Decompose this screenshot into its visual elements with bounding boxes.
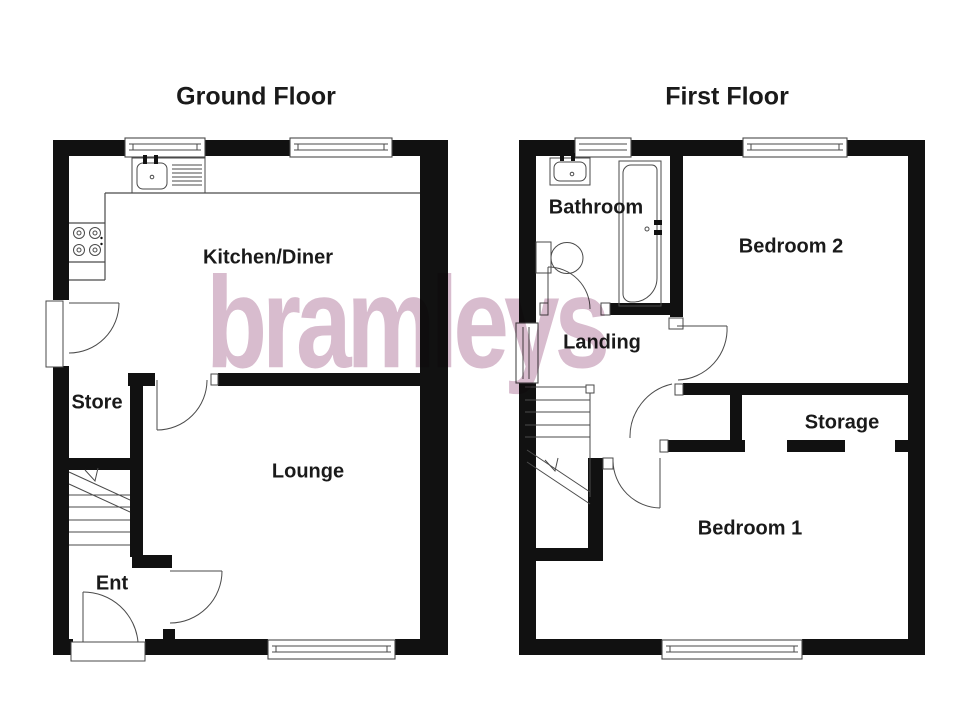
- front-door: [71, 592, 145, 661]
- bathroom-window: [575, 138, 631, 157]
- diner-window: [290, 138, 392, 157]
- bath: [619, 161, 662, 306]
- kitchen-lounge-door: [157, 380, 207, 430]
- room-label-lounge: Lounge: [272, 461, 344, 484]
- bedroom2-window: [743, 138, 847, 157]
- bedroom1-window: [662, 640, 802, 659]
- room-label-store: Store: [71, 392, 122, 415]
- ground-stairs: [69, 468, 130, 545]
- floorplan-canvas: Ground Floor First Floor Kitchen/Diner S…: [0, 0, 980, 712]
- storage-front-wall: [787, 440, 845, 452]
- agency-watermark: bramleys: [206, 258, 605, 388]
- bedroom2-door: [677, 326, 727, 380]
- room-label-storage: Storage: [805, 412, 879, 435]
- room-label-bedroom2: Bedroom 2: [739, 236, 843, 259]
- room-label-ent: Ent: [96, 573, 128, 596]
- kitchen-window: [125, 138, 205, 157]
- ent-lounge-door: [170, 571, 222, 623]
- ground-floor-title: Ground Floor: [176, 83, 336, 112]
- kitchen-sink: [132, 155, 205, 193]
- room-label-bedroom1: Bedroom 1: [698, 518, 802, 541]
- side-door: [46, 301, 119, 367]
- ground-windows: [125, 138, 395, 659]
- room-label-bathroom: Bathroom: [549, 197, 643, 220]
- hob: [74, 228, 103, 256]
- lounge-window: [268, 640, 395, 659]
- wash-basin: [550, 153, 590, 185]
- first-floor-title: First Floor: [665, 83, 789, 112]
- drainer: [172, 165, 202, 185]
